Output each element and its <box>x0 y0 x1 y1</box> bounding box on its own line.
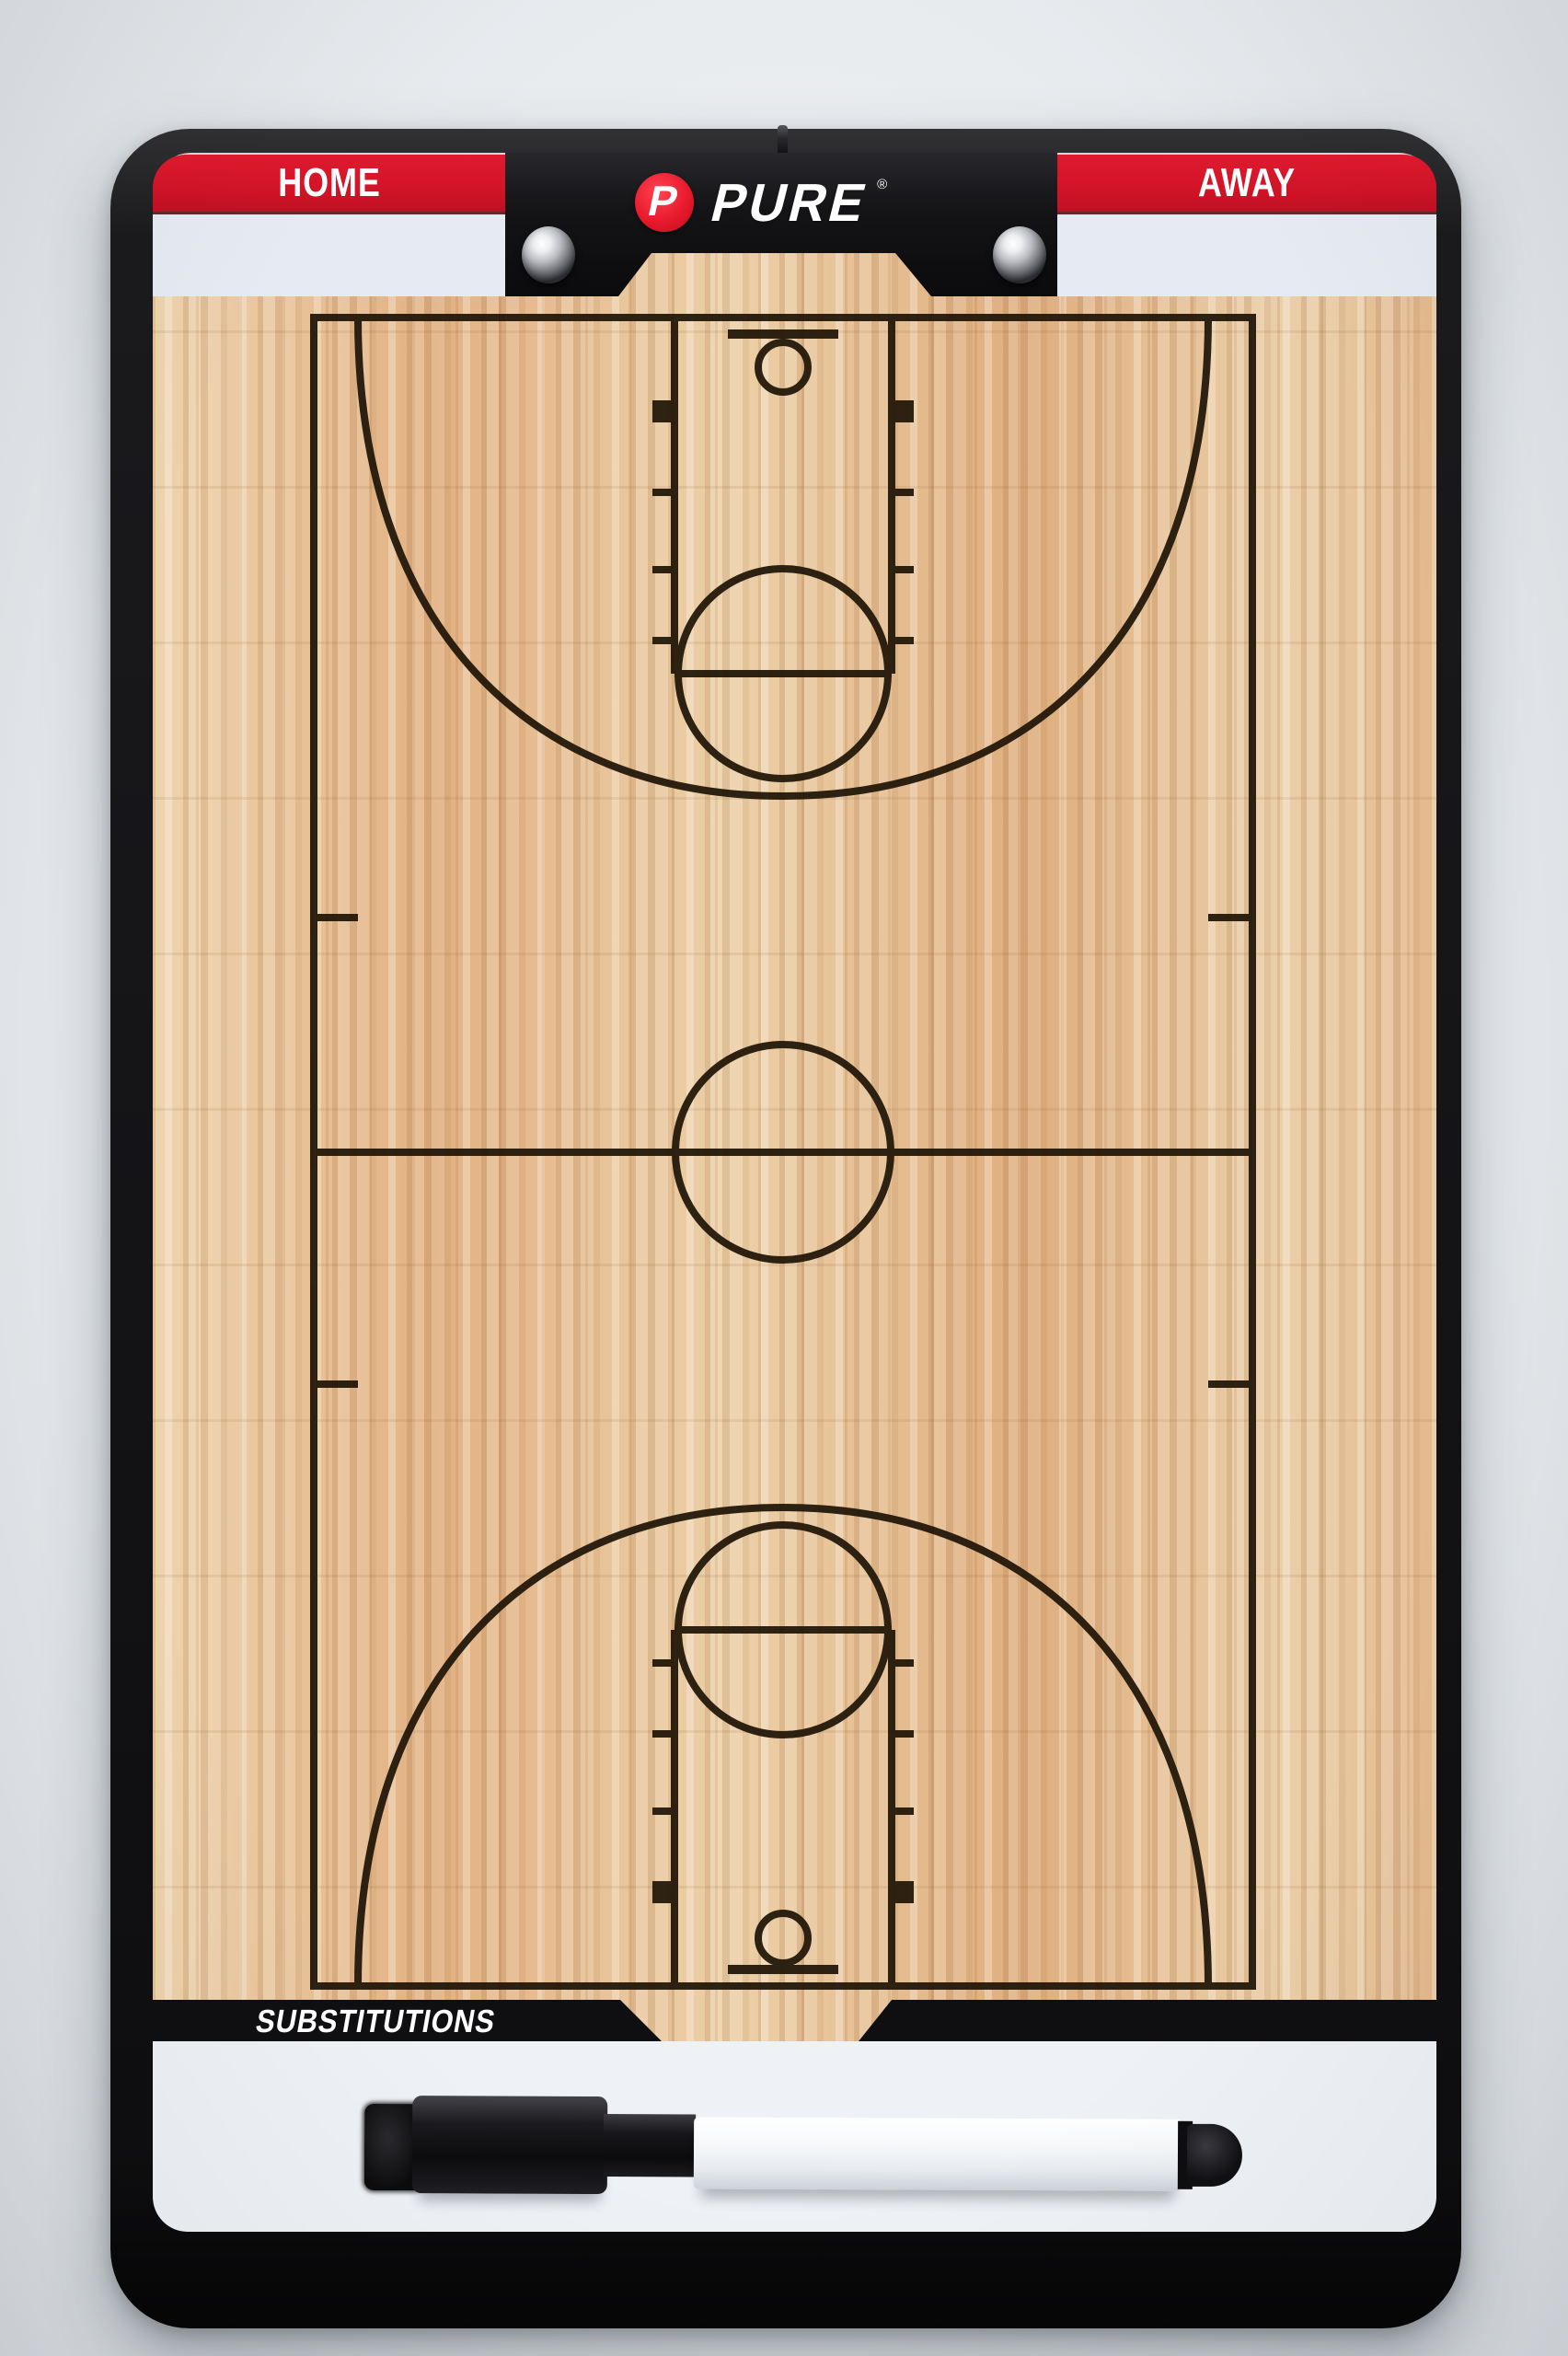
lane-tick <box>652 1659 671 1667</box>
pure-p-badge-icon: P <box>635 173 694 232</box>
lane-tick <box>652 637 671 644</box>
lane-tick <box>895 637 914 644</box>
away-label: AWAY <box>1198 161 1296 206</box>
rivet-right-icon <box>993 226 1046 283</box>
lane-tick <box>652 489 671 496</box>
rivet-left-icon <box>522 226 575 283</box>
pure-logo: P PURE ® <box>635 169 887 236</box>
lane-tick <box>895 1730 914 1738</box>
rim-top <box>758 342 808 392</box>
lane-tick <box>895 489 914 496</box>
lane-block <box>652 400 671 422</box>
rim-bottom <box>758 1913 808 1963</box>
away-band: AWAY <box>1057 155 1436 214</box>
marker-cap-step <box>604 2114 696 2177</box>
lane-tick <box>895 1807 914 1815</box>
photo-backdrop: HOME AWAY <box>0 0 1568 2356</box>
lane-tick <box>652 1730 671 1738</box>
registered-mark: ® <box>877 177 887 192</box>
pure-p-initial: P <box>643 176 682 225</box>
home-label: HOME <box>278 161 381 206</box>
lane-block <box>895 1881 914 1903</box>
pure-wordmark: PURE <box>705 172 875 234</box>
lane-block <box>652 1881 671 1903</box>
lane-block <box>895 400 914 422</box>
marker-cap <box>412 2096 607 2194</box>
marker-end-cap <box>1187 2124 1242 2187</box>
lane-tick <box>652 1807 671 1815</box>
lane-tick <box>652 566 671 573</box>
lane-tick <box>895 1659 914 1667</box>
lane-tick <box>895 566 914 573</box>
substitutions-label: SUBSTITUTIONS <box>253 2004 499 2040</box>
home-band: HOME <box>153 155 505 214</box>
dry-erase-marker <box>359 2093 1252 2207</box>
marker-barrel <box>694 2117 1182 2190</box>
